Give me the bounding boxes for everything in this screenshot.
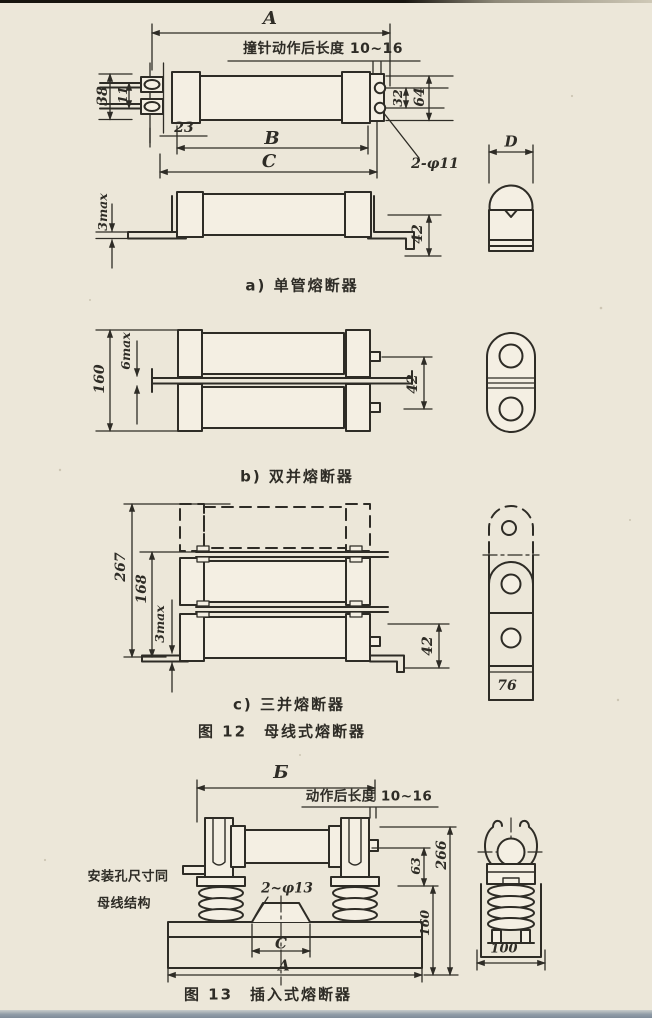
dim-c-label: C	[275, 937, 287, 952]
mounting-hole-note-line2: 母线结构	[97, 898, 151, 911]
dim-100-label: 100	[490, 943, 517, 956]
dim-266-label: 266	[435, 840, 449, 869]
dim-23-label: 23	[174, 121, 193, 135]
dim-64-label: 64	[413, 87, 427, 106]
dim-b-label: B	[264, 130, 279, 148]
dim-42-label: 42	[411, 224, 425, 243]
dim-42-label: 42	[406, 374, 420, 393]
dim-168-label: 168	[135, 574, 149, 603]
dim-76-label: 76	[497, 679, 516, 693]
dim-32-label: 32	[392, 89, 405, 106]
action-length-note: 动作后长度 10~16	[306, 790, 433, 804]
drawing-linework	[0, 0, 652, 1018]
dim-d-label: D	[504, 135, 517, 150]
dim-38-label: 38	[96, 86, 110, 105]
holes-2-phi11-label: 2-φ11	[411, 157, 459, 171]
dim-3max-label: 3max	[154, 605, 167, 642]
dim-160-label: 160	[419, 910, 432, 936]
figure-13-caption: 图 13 插入式熔断器	[184, 988, 352, 1003]
dim-6max-label: 6max	[120, 332, 133, 369]
dim-42-label: 42	[421, 636, 435, 655]
dim-3max-label: 3max	[97, 193, 110, 230]
dim-c-label: C	[262, 153, 276, 171]
dim-a-label: A	[278, 959, 290, 974]
dim-160-label: 160	[93, 364, 107, 393]
scanned-page: A 撞针动作后长度 10~16 38 11 23 32 64 B C 2-φ11…	[0, 0, 652, 1018]
mounting-hole-note-line1: 安装孔尺寸同	[87, 871, 168, 884]
dim-63-label: 63	[410, 857, 423, 874]
dim-b-cyrillic-label: Б	[273, 764, 288, 782]
striker-length-note: 撞针动作后长度 10~16	[243, 42, 403, 56]
dim-267-label: 267	[114, 552, 128, 581]
figure-12-caption: 图 12 母线式熔断器	[198, 725, 366, 740]
dim-a-overall-label: A	[263, 10, 277, 28]
caption-single-tube-fuse: a) 单管熔断器	[245, 279, 358, 294]
holes-2-phi13-label: 2~φ13	[261, 882, 313, 896]
dim-11-label: 11	[117, 86, 130, 103]
caption-triple-parallel-fuse: c) 三并熔断器	[233, 698, 345, 713]
scan-edge-bottom	[0, 1010, 652, 1018]
caption-double-parallel-fuse: b) 双并熔断器	[240, 470, 354, 485]
